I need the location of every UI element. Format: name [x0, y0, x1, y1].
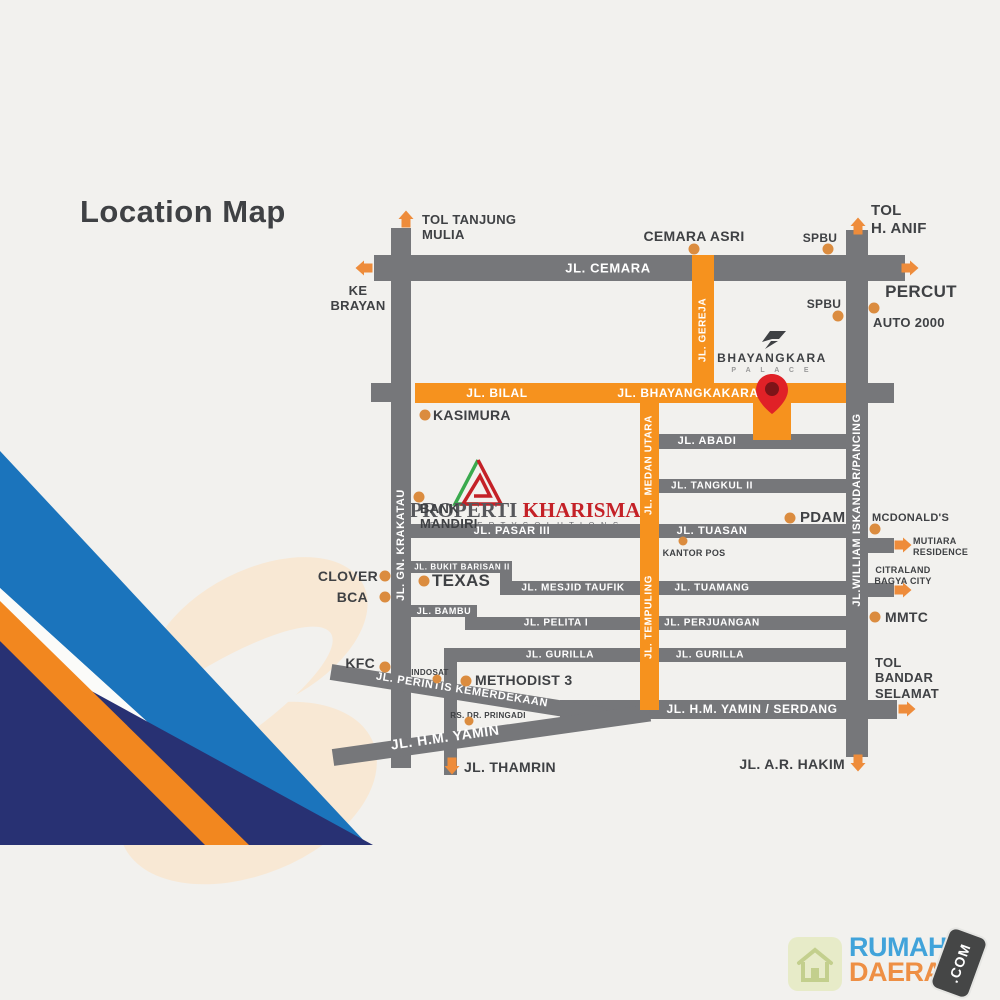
poi-label-spbu: SPBU — [803, 231, 838, 245]
road-label-jl-tuasan: JL. TUASAN — [677, 525, 748, 537]
poi-dot — [420, 410, 431, 421]
road-label-jl-tuamang: JL. TUAMANG — [675, 583, 750, 594]
road-label-jl-gereja: JL. GEREJA — [698, 298, 709, 362]
road-segment — [868, 538, 894, 553]
poi-dot — [870, 524, 881, 535]
poi-label-jl-a-r-hakim: JL. A.R. HAKIM — [739, 756, 845, 773]
poi-dot — [833, 311, 844, 322]
road-label-jl-gn-krakatau: JL. GN. KRAKATAU — [395, 489, 407, 601]
poi-dot — [380, 571, 391, 582]
com-badge-text: .COM — [945, 941, 974, 985]
road-segment — [371, 383, 392, 402]
road-label-jl-perjuangan: JL. PERJUANGAN — [664, 618, 760, 629]
poi-dot — [823, 244, 834, 255]
poi-label-auto-2000: AUTO 2000 — [873, 315, 945, 330]
poi-dot — [785, 513, 796, 524]
poi-dot — [414, 492, 425, 503]
down-arrow — [851, 755, 866, 772]
poi-dot — [465, 717, 474, 726]
road-label-jl-abadi: JL. ABADI — [678, 435, 737, 447]
road-label-jl-bhayangkakara: JL. BHAYANGKAKARA — [617, 386, 758, 400]
road-label-jl-gurilla: JL. GURILLA — [676, 650, 744, 661]
poi-label-mmtc: MMTC — [885, 609, 928, 626]
poi-dot — [679, 537, 688, 546]
poi-dot — [689, 244, 700, 255]
poi-dot — [380, 662, 391, 673]
poi-label-indosat: INDOSAT — [411, 668, 449, 677]
poi-label-methodist-3: METHODIST 3 — [475, 672, 572, 689]
poi-label-ke-brayan: KE BRAYAN — [330, 283, 385, 314]
road-label-jl-pasar-iii: JL. PASAR III — [474, 525, 551, 537]
bhayangkara-palace-logo: BHAYANGKARA P A L A C E — [710, 324, 834, 374]
road-label-jl-tangkul-ii: JL. TANGKUL II — [671, 481, 753, 492]
right-arrow — [895, 538, 912, 553]
poi-label-jl-thamrin: JL. THAMRIN — [464, 759, 556, 776]
road-label-jl-william-iskandar-pancing: JL.WILLIAM ISKANDAR/PANCING — [851, 413, 863, 606]
road-label-jl-bilal: JL. BILAL — [466, 386, 527, 400]
poi-label-texas: TEXAS — [432, 571, 490, 591]
road-label-jl-medan-utara: JL. MEDAN UTARA — [644, 415, 655, 515]
map-area: JL. CEMARAJL. BILALJL. BHAYANGKAKARAJL. … — [0, 0, 1000, 1000]
left-arrow — [356, 261, 373, 276]
road-label-jl-tempuling: JL. TEMPULING — [644, 575, 655, 659]
bhayangkara-glyph-icon — [752, 324, 792, 350]
poi-label-pdam: PDAM — [800, 509, 845, 527]
poi-label-tol-tanjung-mulia: TOL TANJUNG MULIA — [422, 212, 516, 243]
poi-label-cemara-asri: CEMARA ASRI — [643, 228, 744, 245]
poi-label-kantor-pos: KANTOR POS — [663, 548, 726, 559]
poi-label-clover: CLOVER — [318, 568, 378, 585]
road-label-jl-gurilla: JL. GURILLA — [526, 650, 594, 661]
poi-label-percut: PERCUT — [885, 282, 957, 302]
road-label-jl-mesjid-taufik: JL. MESJID TAUFIK — [521, 583, 624, 594]
house-icon — [788, 937, 842, 991]
poi-dot — [869, 303, 880, 314]
site-name: BHAYANGKARA — [710, 351, 834, 365]
poi-dot — [380, 592, 391, 603]
poi-label-kasimura: KASIMURA — [433, 407, 511, 424]
poi-label-kfc: KFC — [345, 655, 375, 672]
poi-dot — [870, 612, 881, 623]
road-segment — [868, 383, 894, 403]
poi-dot — [461, 676, 472, 687]
road-label-jl-pelita-i: JL. PELITA I — [524, 618, 588, 629]
road-label-jl-h-m-yamin-serdang: JL. H.M. YAMIN / SERDANG — [666, 702, 837, 716]
poi-label-spbu: SPBU — [807, 297, 842, 311]
poi-label-tol-h-anif: TOL H. ANIF — [871, 202, 927, 237]
location-pin-icon — [752, 372, 792, 416]
rumahdaerah-logo: RUMAH DAERAH .COM — [786, 930, 1000, 996]
poi-label-bank-mandiri: BANK MANDIRI — [420, 501, 478, 532]
location-map-flyer: Location Map PROPERTI KHARISMA P R O P E… — [0, 0, 1000, 1000]
poi-label-rs-dr-pringadi: RS. DR. PRINGADI — [450, 711, 525, 720]
road-label-jl-cemara: JL. CEMARA — [565, 261, 650, 276]
poi-dot — [419, 576, 430, 587]
up-arrow — [399, 211, 414, 228]
poi-label-tol-bandar-selamat: TOL BANDAR SELAMAT — [875, 655, 939, 701]
right-arrow — [899, 702, 916, 717]
poi-label-bca: BCA — [337, 589, 368, 606]
road-label-jl-bambu: JL. BAMBU — [417, 606, 471, 616]
poi-label-mutiara-residence: MUTIARA RESIDENCE — [913, 536, 968, 557]
poi-label-mcdonald-s: MCDONALD'S — [872, 512, 949, 525]
poi-dot — [433, 675, 442, 684]
